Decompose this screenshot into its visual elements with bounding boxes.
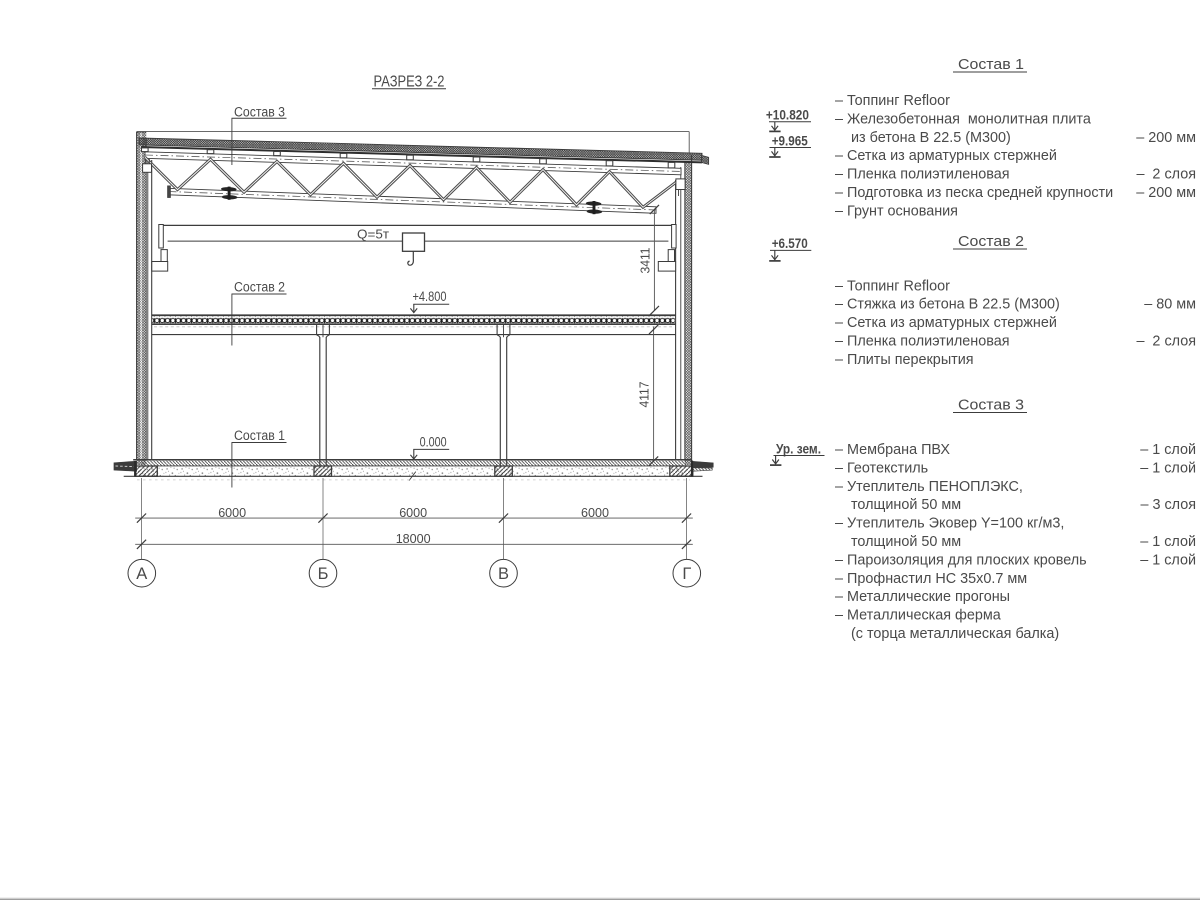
svg-text:– Пароизоляция для плоских кро: – Пароизоляция для плоских кровель xyxy=(835,552,1087,568)
svg-text:– Пленка полиэтиленовая: – Пленка полиэтиленовая xyxy=(835,167,1010,183)
svg-text:18000: 18000 xyxy=(396,531,431,546)
svg-text:6000: 6000 xyxy=(218,505,246,520)
svg-text:– 1 слой: – 1 слой xyxy=(1140,552,1196,568)
svg-text:+10.820: +10.820 xyxy=(766,108,809,124)
svg-text:– Стяжка из бетона В 22.5 (М30: – Стяжка из бетона В 22.5 (М300) xyxy=(835,297,1060,313)
svg-text:– Топпинг Refloor: – Топпинг Refloor xyxy=(835,278,950,294)
svg-text:– Топпинг Refloor: – Топпинг Refloor xyxy=(835,93,950,109)
svg-text:толщиной 50 мм: толщиной 50 мм xyxy=(851,534,961,550)
svg-text:– Мембрана ПВХ: – Мембрана ПВХ xyxy=(835,442,950,458)
svg-text:Состав 3: Состав 3 xyxy=(958,397,1024,414)
svg-text:0.000: 0.000 xyxy=(420,434,447,449)
svg-text:– 3 слоя: – 3 слоя xyxy=(1140,497,1196,513)
svg-text:Состав 1: Состав 1 xyxy=(234,428,285,443)
svg-text:– 80 мм: – 80 мм xyxy=(1144,297,1196,313)
svg-text:– Металлическая ферма: – Металлическая ферма xyxy=(835,608,1001,624)
svg-text:– Железобетонная монолитная п: – Железобетонная монолитная плита xyxy=(835,111,1091,127)
svg-text:Г: Г xyxy=(682,565,691,583)
svg-text:В: В xyxy=(498,565,509,583)
svg-text:– 1 слой: – 1 слой xyxy=(1140,442,1196,458)
svg-text:Q=5т: Q=5т xyxy=(357,227,389,242)
svg-text:– Металлические прогоны: – Металлические прогоны xyxy=(835,589,1010,605)
svg-text:Состав 1: Состав 1 xyxy=(958,56,1024,73)
svg-text:Б: Б xyxy=(318,565,329,583)
svg-text:– 200 мм: – 200 мм xyxy=(1136,185,1196,201)
svg-text:РАЗРЕЗ 2-2: РАЗРЕЗ 2-2 xyxy=(374,73,445,90)
svg-text:– 1 слой: – 1 слой xyxy=(1140,460,1196,476)
svg-text:4117: 4117 xyxy=(637,382,652,408)
svg-text:Ур. зем.: Ур. зем. xyxy=(776,441,821,457)
svg-text:– Пленка полиэтиленовая: – Пленка полиэтиленовая xyxy=(835,334,1010,350)
svg-text:из бетона В 22.5 (М300): из бетона В 22.5 (М300) xyxy=(851,130,1011,146)
svg-text:– Грунт основания: – Грунт основания xyxy=(835,203,958,219)
svg-text:– Сетка из арматурных стержней: – Сетка из арматурных стержней xyxy=(835,148,1057,164)
svg-text:(с торца металлическая балка): (с торца металлическая балка) xyxy=(851,626,1059,642)
svg-text:– Утеплитель ПЕНОПЛЭКС,: – Утеплитель ПЕНОПЛЭКС, xyxy=(835,479,1023,495)
svg-text:А: А xyxy=(136,565,147,583)
svg-text:– Профнастил НС 35х0.7 мм: – Профнастил НС 35х0.7 мм xyxy=(835,571,1027,587)
svg-text:– Сетка из арматурных стержней: – Сетка из арматурных стержней xyxy=(835,315,1057,331)
svg-text:– Подготовка из песка средней: – Подготовка из песка средней крупности xyxy=(835,185,1113,201)
svg-text:толщиной 50 мм: толщиной 50 мм xyxy=(851,497,961,513)
svg-text:– 2 слоя: – 2 слоя xyxy=(1136,167,1196,183)
svg-text:6000: 6000 xyxy=(581,505,609,520)
svg-text:– 200 мм: – 200 мм xyxy=(1136,130,1196,146)
svg-text:Состав 2: Состав 2 xyxy=(958,233,1024,250)
svg-text:– 2 слоя: – 2 слоя xyxy=(1136,334,1196,350)
svg-text:– 1 слой: – 1 слой xyxy=(1140,534,1196,550)
svg-text:Состав 3: Состав 3 xyxy=(234,105,285,120)
svg-text:– Геотекстиль: – Геотекстиль xyxy=(835,460,928,476)
svg-text:Состав 2: Состав 2 xyxy=(234,279,285,294)
svg-text:– Плиты перекрытия: – Плиты перекрытия xyxy=(835,352,974,368)
svg-text:+6.570: +6.570 xyxy=(772,236,808,252)
svg-text:3411: 3411 xyxy=(638,248,653,274)
svg-text:6000: 6000 xyxy=(399,505,427,520)
svg-text:+4.800: +4.800 xyxy=(413,289,447,304)
svg-text:– Утеплитель Эковер Y=100 кг/м: – Утеплитель Эковер Y=100 кг/м3, xyxy=(835,516,1064,532)
